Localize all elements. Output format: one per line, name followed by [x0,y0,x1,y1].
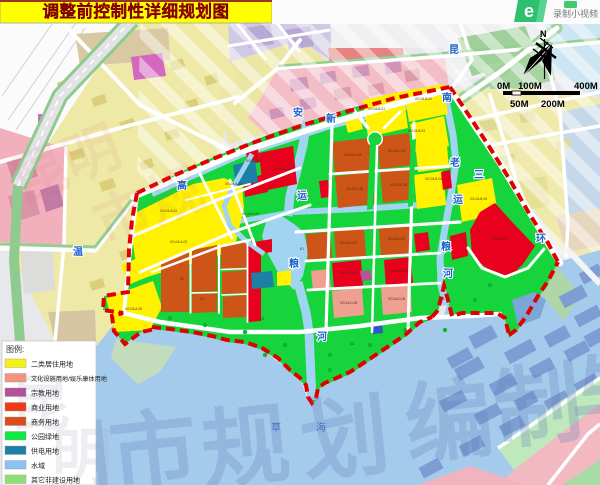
svg-text:E1: E1 [300,247,304,251]
svg-text:XG-04-C-01: XG-04-C-01 [246,159,263,163]
svg-text:0M: 0M [497,81,510,92]
svg-text:XG-04-A-02: XG-04-A-02 [225,182,242,186]
svg-text:市: 市 [105,399,203,485]
svg-text:文化设施用地/娱乐康体用地: 文化设施用地/娱乐康体用地 [31,375,107,383]
svg-text:100M: 100M [518,81,542,92]
svg-text:XG-04-A-04: XG-04-A-04 [242,212,259,216]
svg-text:XG-04-C-05: XG-04-C-05 [346,187,363,191]
svg-text:其它非建设用地: 其它非建设用地 [31,476,80,485]
svg-text:图例:: 图例: [6,344,24,354]
svg-text:R2: R2 [180,277,184,281]
svg-text:XG-04-B-03: XG-04-B-03 [408,129,425,133]
svg-text:XG-04-D-04: XG-04-D-04 [390,269,407,273]
svg-text:划: 划 [296,385,394,485]
svg-text:G2: G2 [260,317,264,321]
svg-text:XG-04-D-03: XG-04-D-03 [340,271,357,275]
svg-text:调整前控制性详细规划图: 调整前控制性详细规划图 [43,1,230,21]
svg-text:400M: 400M [574,81,598,92]
svg-text:昆: 昆 [449,44,459,56]
svg-text:XG-04-C-06: XG-04-C-06 [390,183,407,187]
svg-text:公园绿地: 公园绿地 [31,432,59,441]
svg-text:XG-04-E-01: XG-04-E-01 [492,237,509,241]
svg-text:200M: 200M [541,99,565,110]
svg-text:水域: 水域 [31,461,45,470]
svg-text:商务用地: 商务用地 [31,418,59,427]
svg-text:供电用地: 供电用地 [31,447,59,456]
svg-text:规: 规 [197,393,295,485]
svg-text:XG-04-D-01: XG-04-D-01 [340,241,357,245]
svg-text:N: N [540,29,547,39]
svg-text:XG-04-B-05: XG-04-B-05 [470,197,487,201]
svg-text:G3: G3 [350,342,354,346]
svg-text:G1: G1 [200,297,204,301]
svg-text:XG-04-D-05: XG-04-D-05 [340,301,357,305]
svg-text:XG-04-A-05: XG-04-A-05 [125,307,142,311]
svg-text:XG-04-C-03: XG-04-C-03 [344,153,361,157]
svg-text:XG-04-D-06: XG-04-D-06 [388,297,405,301]
svg-text:XG-04-D-02: XG-04-D-02 [388,237,405,241]
svg-text:XG-04-B-01: XG-04-B-01 [368,107,385,111]
svg-text:e: e [524,1,534,21]
svg-text:XG-04-B-02: XG-04-B-02 [415,97,432,101]
svg-text:编: 编 [400,368,498,476]
svg-text:南: 南 [442,91,452,104]
svg-text:明: 明 [52,424,112,485]
svg-text:二类居住用地: 二类居住用地 [31,360,73,369]
svg-text:录制小视频: 录制小视频 [553,8,598,19]
svg-text:运: 运 [453,194,463,206]
svg-text:河: 河 [443,268,453,280]
svg-text:河: 河 [317,331,327,343]
svg-text:安: 安 [293,106,303,119]
svg-text:商业用地: 商业用地 [31,403,59,412]
svg-text:粮: 粮 [289,257,299,270]
svg-text:老: 老 [449,156,460,169]
svg-text:宗教用地: 宗教用地 [31,389,59,398]
svg-text:温: 温 [73,245,83,258]
svg-text:XG-04-C-04: XG-04-C-04 [388,149,405,153]
svg-text:50M: 50M [510,99,529,110]
svg-text:XG-04-C-02: XG-04-C-02 [274,167,291,171]
svg-text:粮: 粮 [441,240,451,253]
svg-text:运: 运 [297,190,307,202]
svg-text:三: 三 [474,169,484,181]
svg-text:XG-04-B-04: XG-04-B-04 [425,177,442,181]
svg-text:新: 新 [326,112,336,125]
svg-text:XG-04-A-03: XG-04-A-03 [170,240,187,244]
svg-text:环: 环 [536,233,546,245]
